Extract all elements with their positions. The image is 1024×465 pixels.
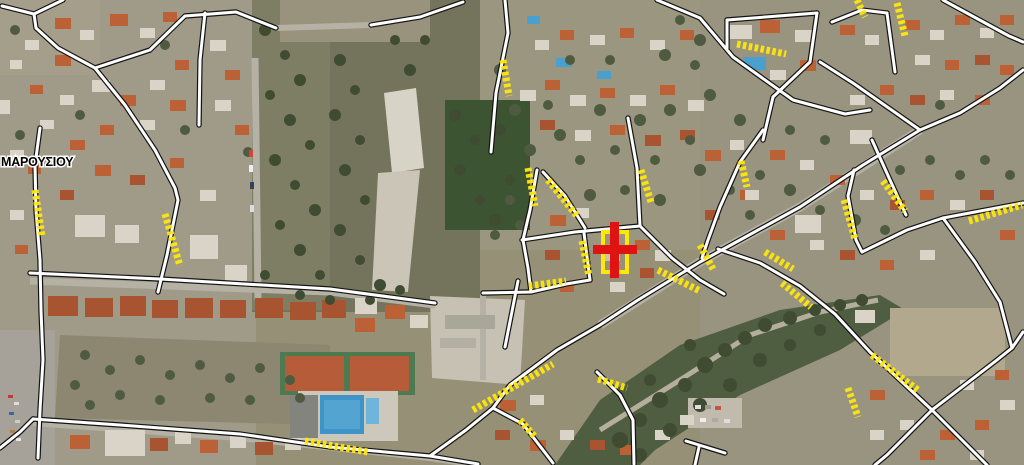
aerial-imagery	[0, 0, 1024, 465]
map-viewport[interactable]: ΜΑΡΟΥΣΙΟΥ	[0, 0, 1024, 465]
place-label: ΜΑΡΟΥΣΙΟΥ	[1, 155, 74, 169]
aerial-map: ΜΑΡΟΥΣΙΟΥ	[0, 0, 1024, 465]
